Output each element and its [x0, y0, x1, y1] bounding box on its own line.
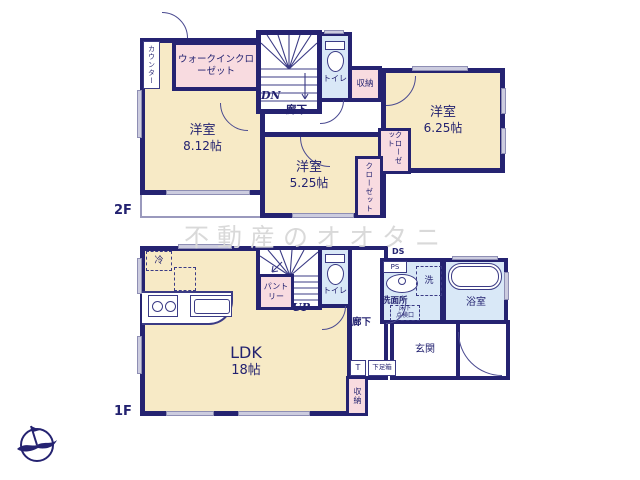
window — [166, 411, 214, 416]
dashed-cabinet — [174, 267, 196, 291]
watermark: 不動産のオオタニ — [184, 218, 448, 254]
washing-machine-label: 洗 — [424, 276, 433, 287]
room-name: 洋室 — [296, 160, 322, 176]
window — [504, 272, 509, 300]
walk-in-closet: ウォークインクローゼット — [172, 41, 260, 91]
toilet-room-2f: トイレ — [318, 32, 352, 102]
room-area: 8.12帖 — [183, 139, 222, 154]
closet-525: クローゼット — [355, 156, 383, 218]
entrance: 玄関 — [390, 320, 460, 380]
refrigerator-label: 冷 — [154, 256, 163, 267]
storage-1f: 収納 — [346, 376, 368, 416]
floor-label-2f: 2F — [114, 203, 132, 219]
hallway-2f-label: 廊下 — [286, 104, 307, 117]
washing-machine: 洗 — [416, 266, 442, 296]
shoebox-t: T — [350, 360, 366, 376]
bathroom-label: 浴室 — [456, 297, 496, 309]
window — [166, 190, 250, 195]
window — [137, 258, 142, 294]
window — [501, 128, 506, 154]
window — [501, 88, 506, 114]
pipe-space: PS — [383, 261, 407, 273]
room-name: 洋室 — [430, 105, 456, 121]
window — [238, 411, 310, 416]
shoebox: 下足箱 — [368, 360, 396, 376]
room-area: 6.25帖 — [424, 121, 463, 136]
washroom-label: 洗面所 — [382, 296, 408, 306]
entrance-label: 玄関 — [415, 344, 435, 356]
washbasin-icon — [386, 274, 418, 293]
stair-direction-dn: DN — [261, 89, 281, 102]
window — [324, 30, 344, 34]
pantry-label: パントリー — [262, 282, 290, 303]
storage-2f: 収納 — [348, 66, 382, 102]
hallway-1f-label: 廊下 — [352, 317, 371, 329]
ldk-label: LDK 18帖 — [140, 343, 352, 378]
ldk-area: 18帖 — [140, 363, 352, 379]
toilet-room-1f: トイレ — [318, 246, 352, 308]
kitchen-sink-icon — [190, 295, 232, 317]
ldk-name: LDK — [140, 343, 352, 363]
room-area: 5.25帖 — [290, 176, 329, 191]
toilet-icon — [322, 254, 348, 285]
room-name: 洋室 — [189, 123, 215, 139]
toilet-icon — [322, 41, 348, 72]
inspection-line2: 点検口 — [391, 313, 419, 320]
floor-inspection-hatch: 床下 点検口 — [390, 305, 420, 321]
toilet-2f-label: トイレ — [322, 74, 348, 84]
stair-direction-up: UP — [292, 301, 310, 314]
stove-icon — [148, 295, 178, 317]
pantry: パントリー — [258, 274, 294, 310]
north-compass-icon — [12, 418, 62, 468]
walk-in-closet-label: ウォークインクローゼット — [178, 54, 254, 77]
window — [412, 66, 468, 71]
counter: カウンター — [143, 41, 160, 89]
storage-2f-label: 収納 — [356, 79, 373, 89]
window — [452, 256, 498, 260]
toilet-1f-label: トイレ — [322, 286, 348, 296]
floor-plan: 2F 洋室 8.12帖 洋室 5.25帖 洋室 6.25帖 DN 廊下 トイレ — [0, 0, 640, 480]
refrigerator: 冷 — [146, 251, 172, 271]
bathtub-icon — [448, 263, 502, 290]
floor-label-1f: 1F — [114, 404, 132, 420]
window — [137, 90, 142, 138]
